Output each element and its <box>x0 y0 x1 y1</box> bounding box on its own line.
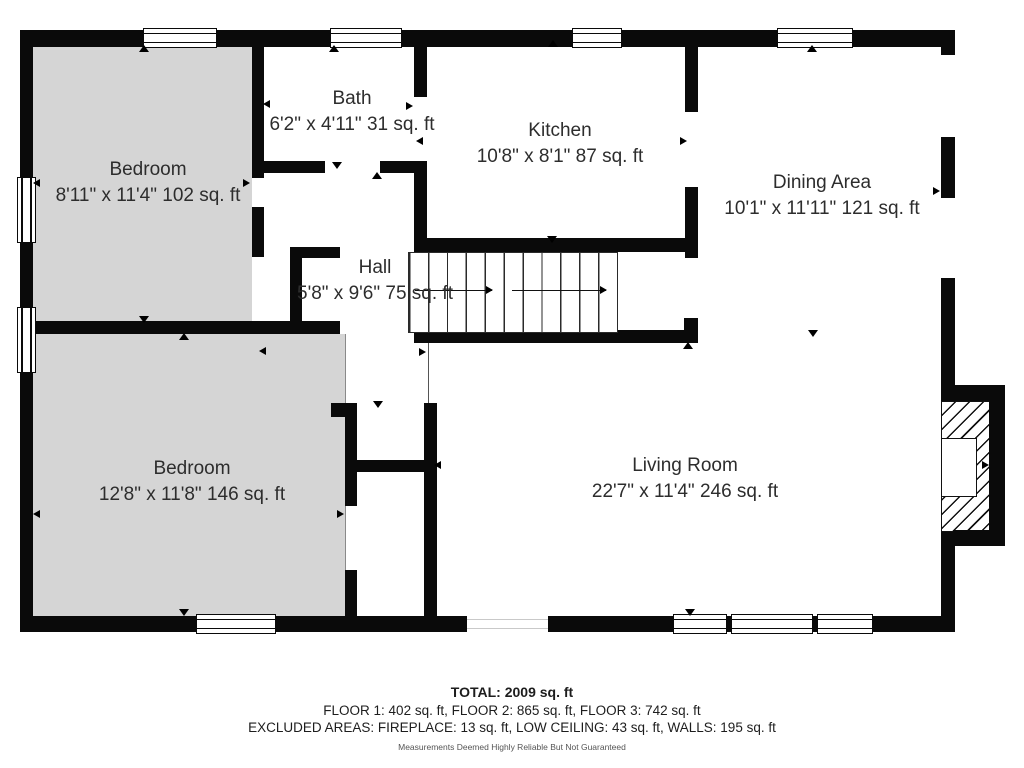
stair-direction-line <box>512 290 606 291</box>
door-arrow-icon <box>259 347 266 355</box>
door-arrow-icon <box>434 461 441 469</box>
door-arrow-icon <box>683 342 693 349</box>
door-arrow-icon <box>243 179 250 187</box>
room-dims: 6'2" x 4'11" 31 sq. ft <box>269 112 434 138</box>
door-arrow-icon <box>372 172 382 179</box>
wall-segment <box>684 318 698 330</box>
door-arrow-icon <box>416 137 423 145</box>
window <box>817 614 873 634</box>
wall-segment <box>252 207 264 257</box>
window <box>673 614 727 634</box>
fireplace-wall <box>989 385 1005 546</box>
window <box>17 307 36 373</box>
window <box>143 28 217 48</box>
room-label-hall: Hall 5'8" x 9'6" 75 sq. ft <box>297 255 453 307</box>
door-arrow-icon <box>982 461 989 469</box>
room-dims: 5'8" x 9'6" 75 sq. ft <box>297 281 453 307</box>
door-arrow-icon <box>807 45 817 52</box>
door-arrow-icon <box>808 330 818 337</box>
door-arrow-icon <box>548 40 558 47</box>
window <box>731 614 813 634</box>
wall-segment <box>252 47 264 178</box>
window <box>330 28 402 48</box>
door-arrow-icon <box>547 236 557 243</box>
wall-segment <box>352 460 430 472</box>
room-dims: 22'7" x 11'4" 246 sq. ft <box>592 479 778 505</box>
door-arrow-icon <box>332 162 342 169</box>
room-dims: 12'8" x 11'8" 146 sq. ft <box>99 482 285 508</box>
stair-direction-arrow <box>600 286 607 294</box>
floor-plan-page: Bedroom 8'11" x 11'4" 102 sq. ft Bath 6'… <box>0 0 1024 768</box>
room-name: Bedroom <box>56 157 241 183</box>
door-arrow-icon <box>139 316 149 323</box>
entry-door-opening <box>467 616 548 632</box>
room-dims: 10'1" x 11'11" 121 sq. ft <box>724 196 919 222</box>
summary-total: TOTAL: 2009 sq. ft <box>0 684 1024 700</box>
room-dims: 10'8" x 8'1" 87 sq. ft <box>477 144 644 170</box>
door-arrow-icon <box>179 333 189 340</box>
wall-segment <box>941 137 955 198</box>
room-label-bedroom-1: Bedroom 8'11" x 11'4" 102 sq. ft <box>56 157 241 209</box>
room-label-living-room: Living Room 22'7" x 11'4" 246 sq. ft <box>592 453 778 505</box>
room-label-kitchen: Kitchen 10'8" x 8'1" 87 sq. ft <box>477 118 644 170</box>
open-boundary-line <box>428 343 429 403</box>
door-arrow-icon <box>419 348 426 356</box>
room-name: Dining Area <box>724 170 919 196</box>
fireplace-wall <box>953 530 1005 546</box>
room-label-dining-area: Dining Area 10'1" x 11'11" 121 sq. ft <box>724 170 919 222</box>
wall-segment <box>424 403 437 616</box>
wall-segment <box>345 403 357 506</box>
door-arrow-icon <box>933 187 940 195</box>
door-arrow-icon <box>680 137 687 145</box>
wall-segment <box>941 278 955 401</box>
summary-floors: FLOOR 1: 402 sq. ft, FLOOR 2: 865 sq. ft… <box>0 703 1024 718</box>
wall-segment <box>345 570 357 616</box>
room-dims: 8'11" x 11'4" 102 sq. ft <box>56 183 241 209</box>
door-arrow-icon <box>329 45 339 52</box>
room-label-bath: Bath 6'2" x 4'11" 31 sq. ft <box>269 86 434 138</box>
room-name: Bath <box>269 86 434 112</box>
door-arrow-icon <box>337 510 344 518</box>
wall-segment <box>252 161 325 173</box>
window <box>572 28 622 48</box>
door-arrow-icon <box>685 609 695 616</box>
summary-disclaimer: Measurements Deemed Highly Reliable But … <box>0 742 1024 752</box>
room-name: Hall <box>297 255 453 281</box>
room-name: Kitchen <box>477 118 644 144</box>
door-arrow-icon <box>33 179 40 187</box>
door-arrow-icon <box>33 510 40 518</box>
room-name: Bedroom <box>99 456 285 482</box>
door-arrow-icon <box>139 45 149 52</box>
door-arrow-icon <box>373 401 383 408</box>
wall-segment <box>941 30 955 55</box>
door-arrow-icon <box>179 609 189 616</box>
room-label-bedroom-2: Bedroom 12'8" x 11'8" 146 sq. ft <box>99 456 285 508</box>
summary-excluded: EXCLUDED AREAS: FIREPLACE: 13 sq. ft, LO… <box>0 720 1024 735</box>
window <box>196 614 276 634</box>
wall-segment <box>685 47 698 112</box>
room-name: Living Room <box>592 453 778 479</box>
stair-direction-arrow <box>486 286 493 294</box>
firebox <box>941 438 977 497</box>
